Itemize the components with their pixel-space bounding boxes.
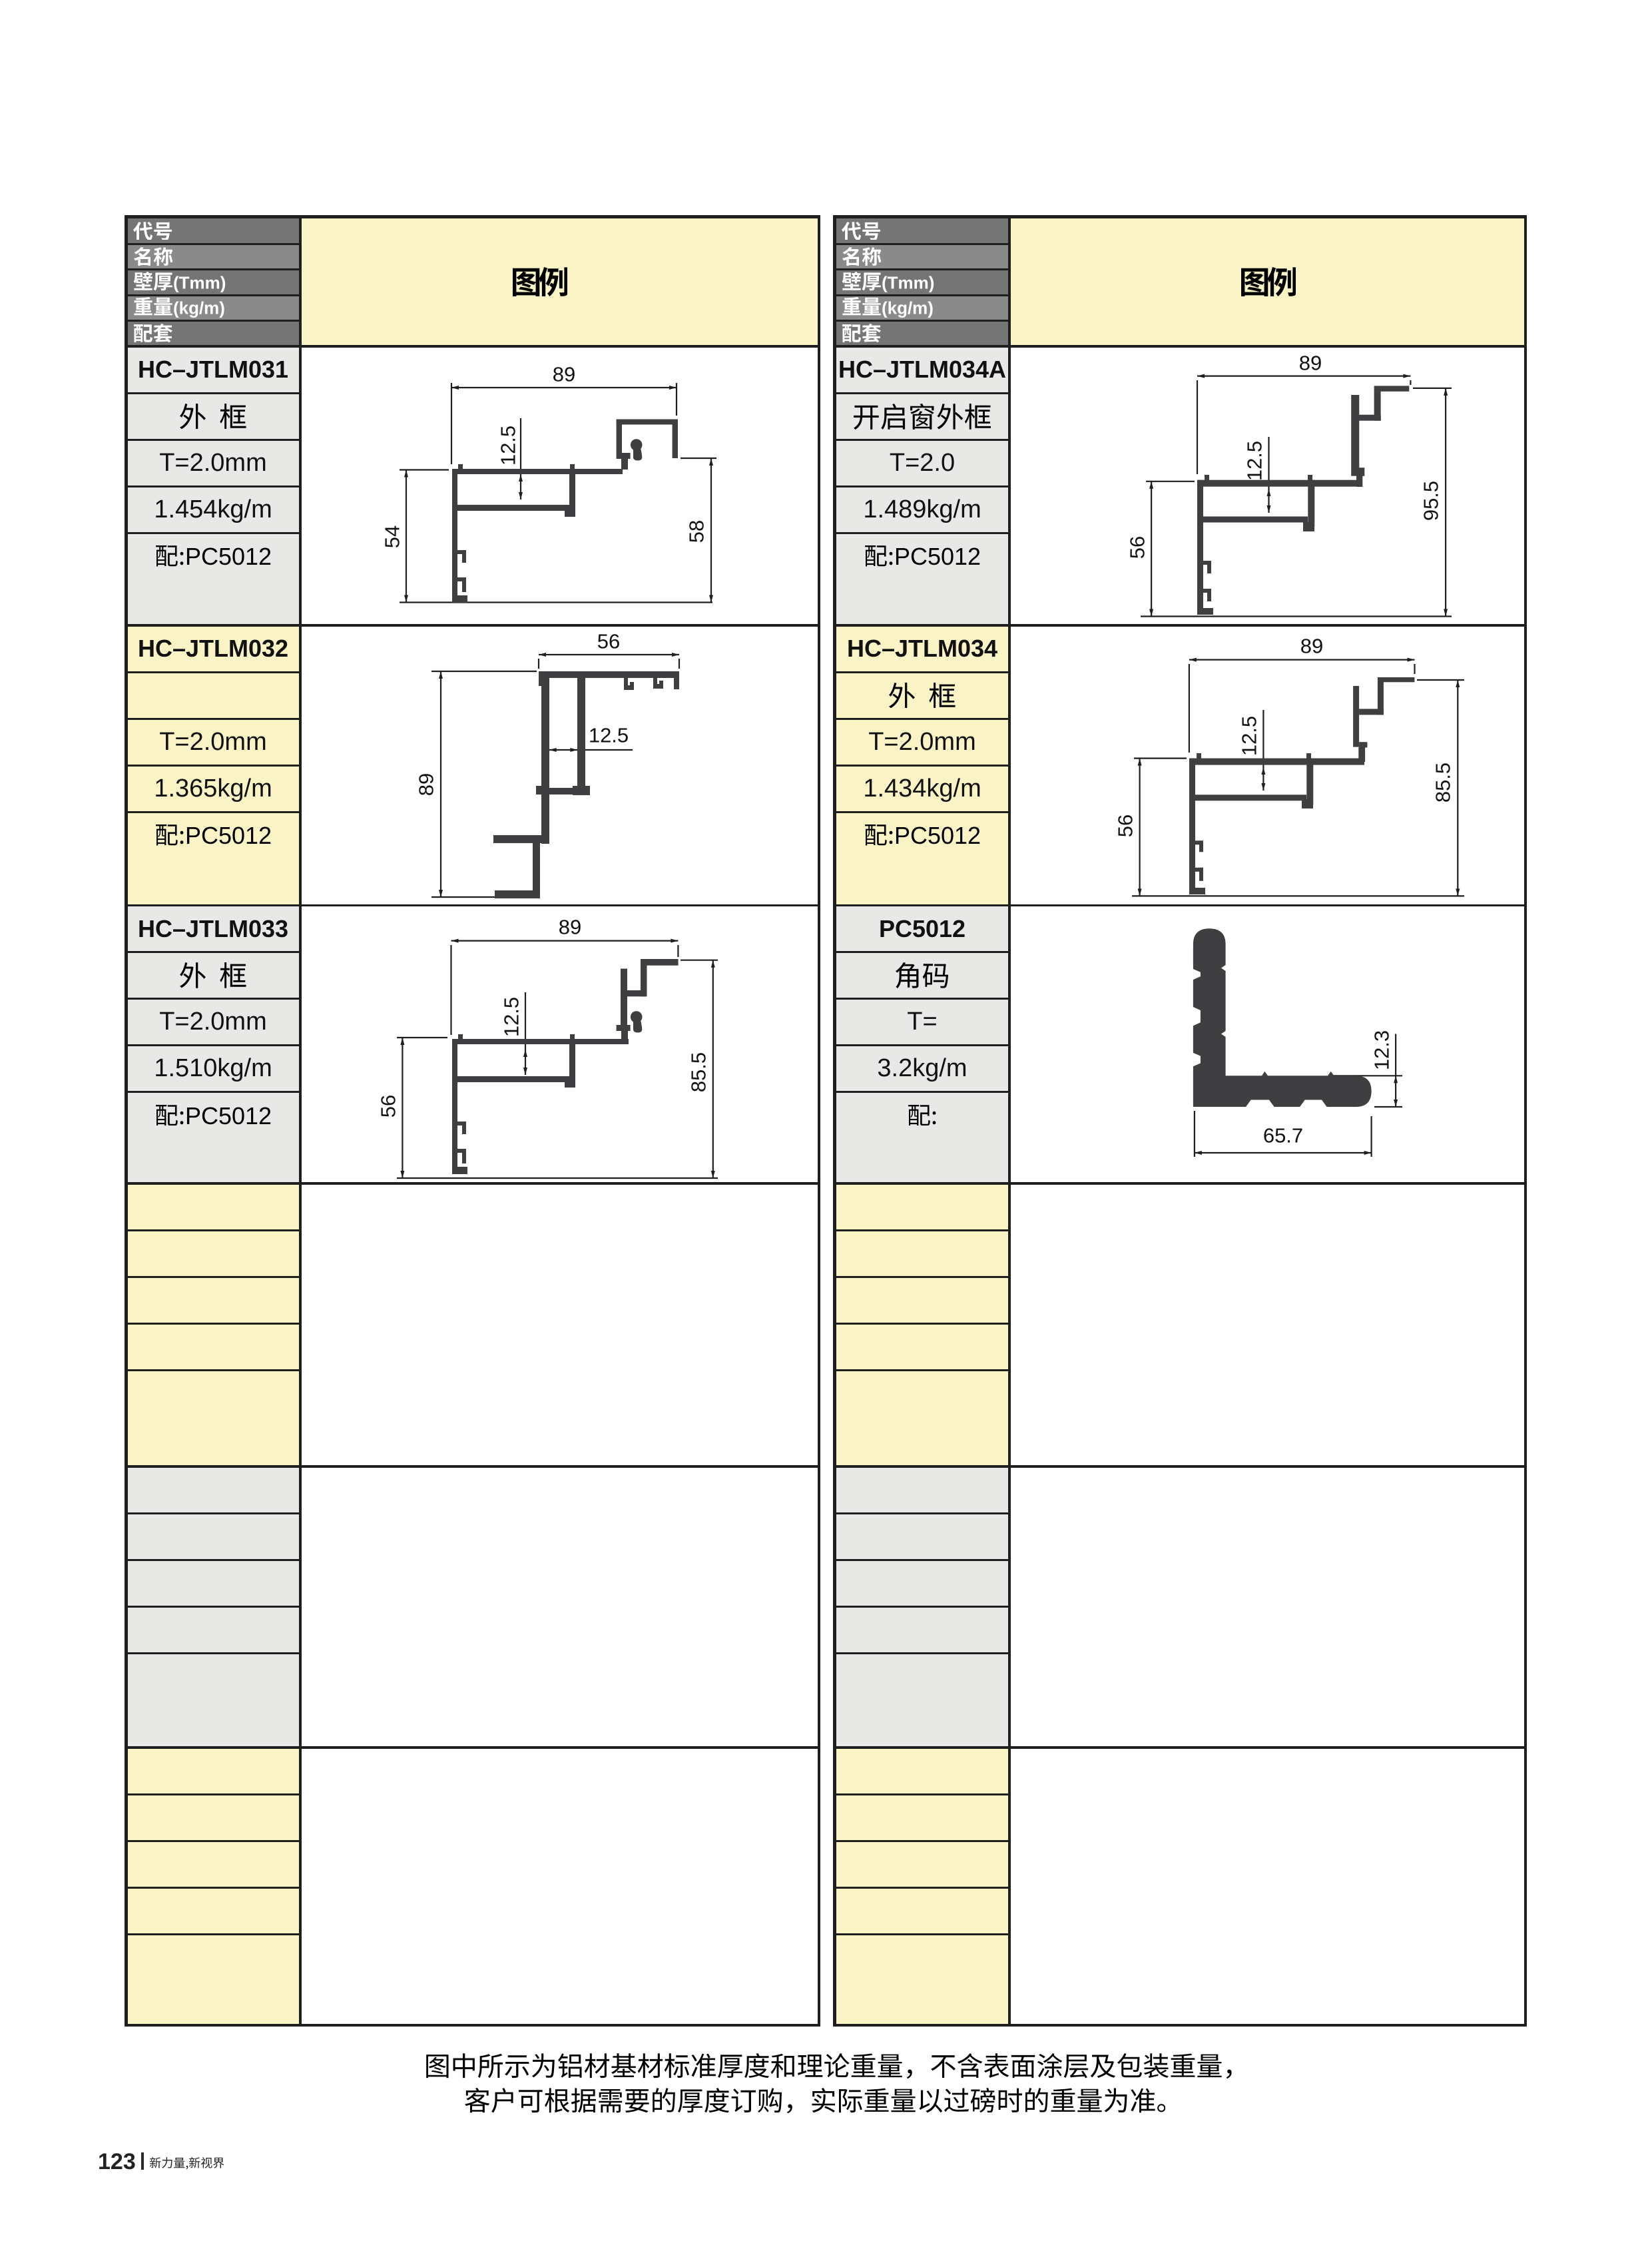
svg-text:PC5012: PC5012 [185,1105,272,1126]
svg-text:12.5: 12.5 [1243,441,1266,481]
svg-text:89: 89 [415,773,438,796]
svg-text:(kg/m): (kg/m) [173,298,225,318]
svg-text:56: 56 [1114,814,1137,837]
svg-text:12.5: 12.5 [1238,716,1261,756]
svg-text:12.5: 12.5 [500,997,523,1037]
svg-text:54: 54 [381,525,404,548]
svg-text:89: 89 [1299,352,1322,375]
svg-text:56: 56 [377,1095,400,1118]
svg-text:12.5: 12.5 [497,426,520,466]
svg-text:(Tmm): (Tmm) [882,272,934,292]
svg-text:89: 89 [553,363,575,386]
svg-text:(Tmm): (Tmm) [173,272,226,292]
svg-text:85.5: 85.5 [1432,763,1455,802]
svg-text:89: 89 [1300,635,1323,658]
svg-text:95.5: 95.5 [1420,481,1443,521]
svg-text:89: 89 [559,916,581,939]
svg-text:12.3: 12.3 [1370,1030,1394,1070]
svg-text:65.7: 65.7 [1263,1124,1303,1147]
svg-text:PC5012: PC5012 [894,545,981,567]
svg-text:56: 56 [1126,536,1149,559]
svg-text:PC5012: PC5012 [894,824,981,846]
svg-text:PC5012: PC5012 [185,824,272,846]
svg-text:56: 56 [597,630,620,653]
svg-text:58: 58 [685,520,708,543]
svg-text:(kg/m): (kg/m) [882,298,934,318]
svg-text:12.5: 12.5 [589,724,629,747]
svg-text:85.5: 85.5 [687,1052,710,1092]
svg-text:PC5012: PC5012 [185,545,272,567]
